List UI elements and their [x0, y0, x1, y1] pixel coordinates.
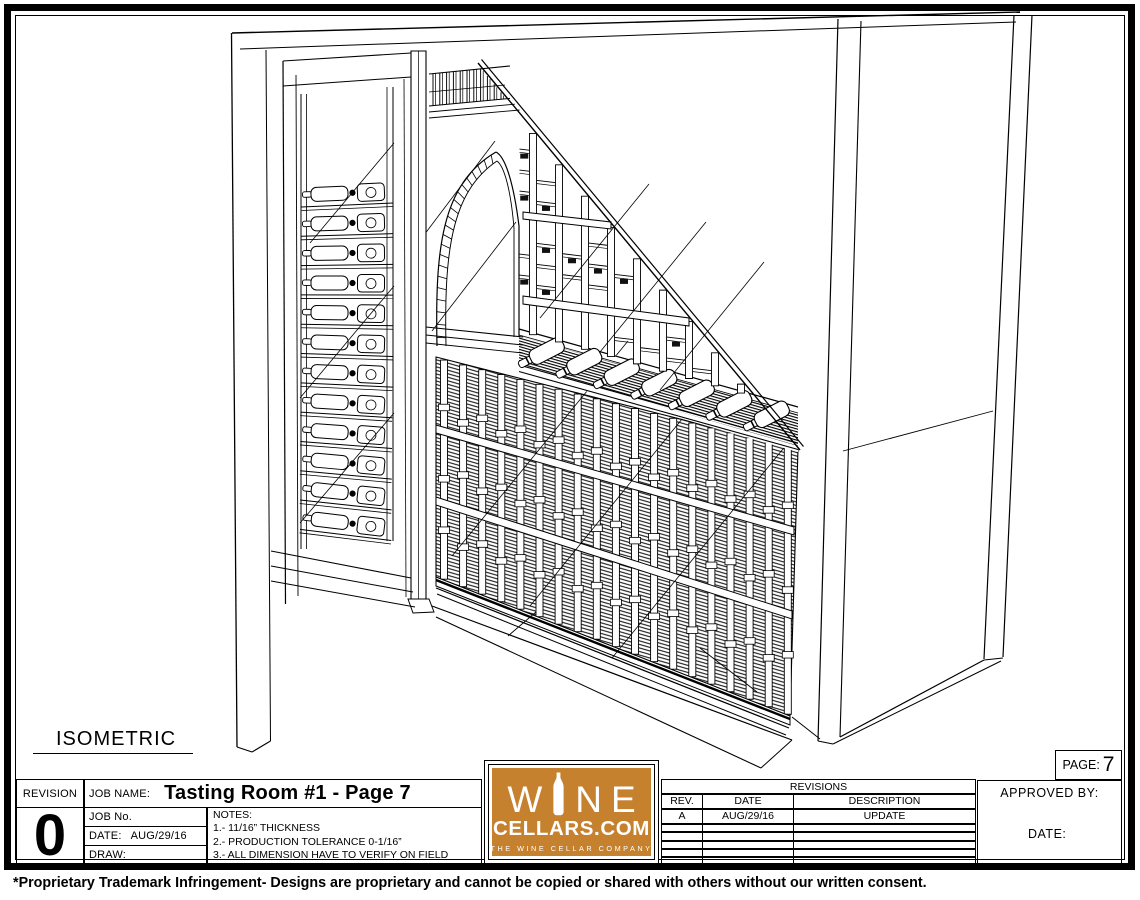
date-value: AUG/29/16 — [131, 830, 187, 842]
revisions-empty-cell — [793, 856, 976, 866]
approval-date-label: DATE: — [1028, 827, 1066, 841]
page-number: 7 — [1103, 753, 1115, 777]
revisions-empty-cell — [702, 856, 794, 866]
note-line-3: 3.- ALL DIMENSION HAVE TO VERIFY ON FIEL… — [213, 849, 481, 863]
revision-number-cell: 0 — [16, 807, 84, 864]
logo-brand-text: CELLARS.COM — [493, 817, 650, 841]
date-label: DATE: — [89, 830, 122, 842]
job-name-label: JOB NAME: — [89, 788, 150, 800]
notes-title: NOTES: — [213, 809, 481, 823]
wine-bottle-icon — [551, 772, 566, 816]
draw-cell: DRAW: — [84, 845, 207, 864]
job-name-cell: JOB NAME: Tasting Room #1 - Page 7 — [84, 779, 482, 808]
logo-panel: W N E CELLARS.COM THE WINE CELLAR COMPAN… — [492, 768, 651, 856]
approval-box: APPROVED BY: DATE: — [977, 780, 1122, 864]
page-label: PAGE: — [1063, 758, 1100, 772]
note-line-1: 1.- 11/16” THICKNESS — [213, 822, 481, 836]
drawing-sheet: ISOMETRIC REVISION JOB NAME: Tasting Roo… — [0, 0, 1140, 900]
notes-cell: NOTES: 1.- 11/16” THICKNESS 2.- PRODUCTI… — [207, 807, 482, 864]
view-title-underline — [33, 753, 193, 754]
view-title: ISOMETRIC — [56, 728, 176, 751]
approved-by-label: APPROVED BY: — [978, 786, 1121, 800]
revisions-empty-cell — [661, 856, 703, 866]
logo-tagline: THE WINE CELLAR COMPANY — [491, 844, 653, 853]
page-box: PAGE: 7 — [1055, 750, 1122, 780]
date-cell: DATE: AUG/29/16 — [84, 826, 207, 846]
logo-wordmark: W N E — [507, 772, 635, 816]
proprietary-disclaimer: *Proprietary Trademark Infringement- Des… — [13, 875, 1133, 891]
job-no-cell: JOB No. — [84, 807, 207, 827]
note-line-2: 2.- PRODUCTION TOLERANCE 0-1/16” — [213, 836, 481, 850]
logo-letter-w: W — [507, 784, 542, 815]
logo-letter-n: N — [575, 784, 602, 815]
company-logo: W N E CELLARS.COM THE WINE CELLAR COMPAN… — [484, 760, 659, 864]
sheet-inner-border — [15, 15, 1125, 860]
logo-letter-e: E — [611, 784, 636, 815]
job-name-value: Tasting Room #1 - Page 7 — [164, 782, 411, 805]
